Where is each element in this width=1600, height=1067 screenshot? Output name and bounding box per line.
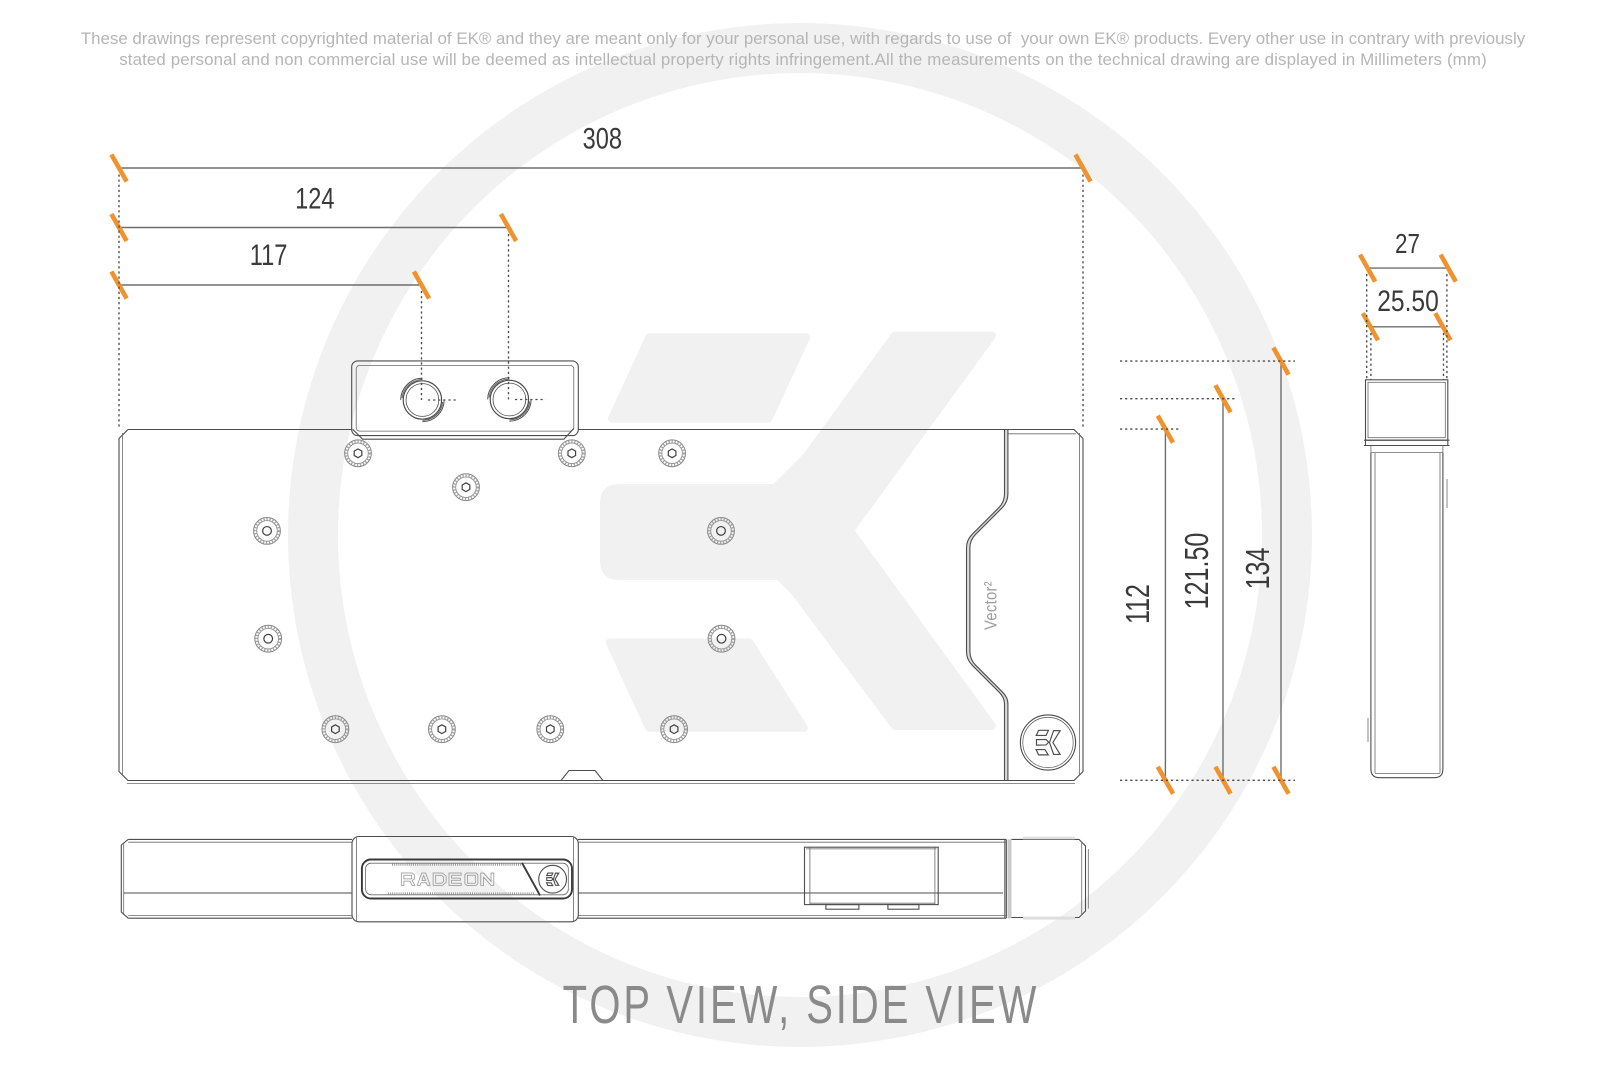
- svg-text:These drawings represent copyr: These drawings represent copyrighted mat…: [81, 29, 1526, 48]
- svg-text:121.50: 121.50: [1179, 533, 1216, 610]
- svg-text:112: 112: [1120, 584, 1157, 624]
- svg-text:stated personal and non commer: stated personal and non commercial use w…: [119, 50, 1487, 69]
- svg-text:134: 134: [1240, 548, 1277, 590]
- svg-text:25.50: 25.50: [1377, 284, 1439, 318]
- svg-text:308: 308: [583, 122, 622, 155]
- svg-text:TOP VIEW, SIDE VIEW: TOP VIEW, SIDE VIEW: [563, 975, 1040, 1035]
- svg-text:124: 124: [295, 182, 334, 215]
- svg-text:Vector²: Vector²: [981, 581, 1001, 630]
- svg-text:27: 27: [1395, 229, 1420, 260]
- svg-text:117: 117: [250, 238, 288, 271]
